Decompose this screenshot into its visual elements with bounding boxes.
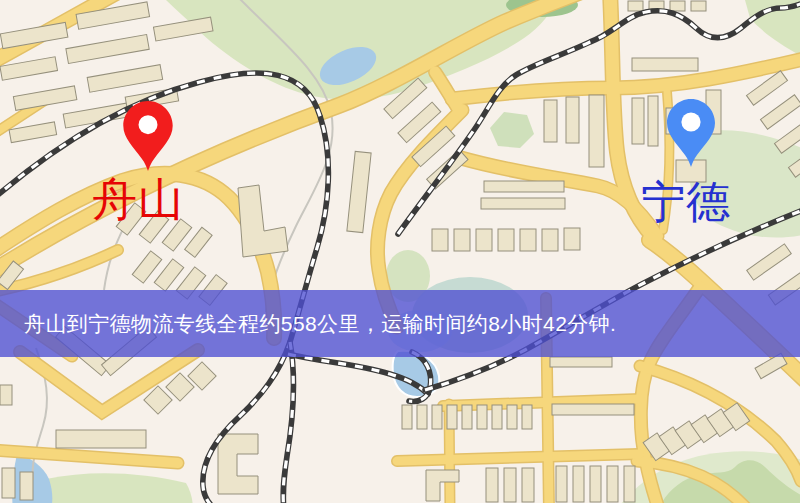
pin-hole — [139, 115, 158, 134]
route-info-banner: 舟山到宁德物流专线全程约558公里，运输时间约8小时42分钟. — [0, 290, 800, 357]
origin-label: 舟山 — [92, 177, 184, 222]
map: 舟山 宁德 舟山到宁德物流专线全程约558公里，运输时间约8小时42分钟. — [0, 0, 800, 503]
location-pin-icon — [122, 101, 174, 171]
map-image — [0, 0, 800, 503]
destination-label: 宁德 — [641, 180, 731, 224]
pin-hole — [681, 112, 700, 131]
location-pin-icon — [663, 99, 719, 167]
pin-shape — [667, 99, 715, 167]
pin-shape — [123, 101, 172, 171]
route-info-text: 舟山到宁德物流专线全程约558公里，运输时间约8小时42分钟. — [24, 310, 616, 338]
